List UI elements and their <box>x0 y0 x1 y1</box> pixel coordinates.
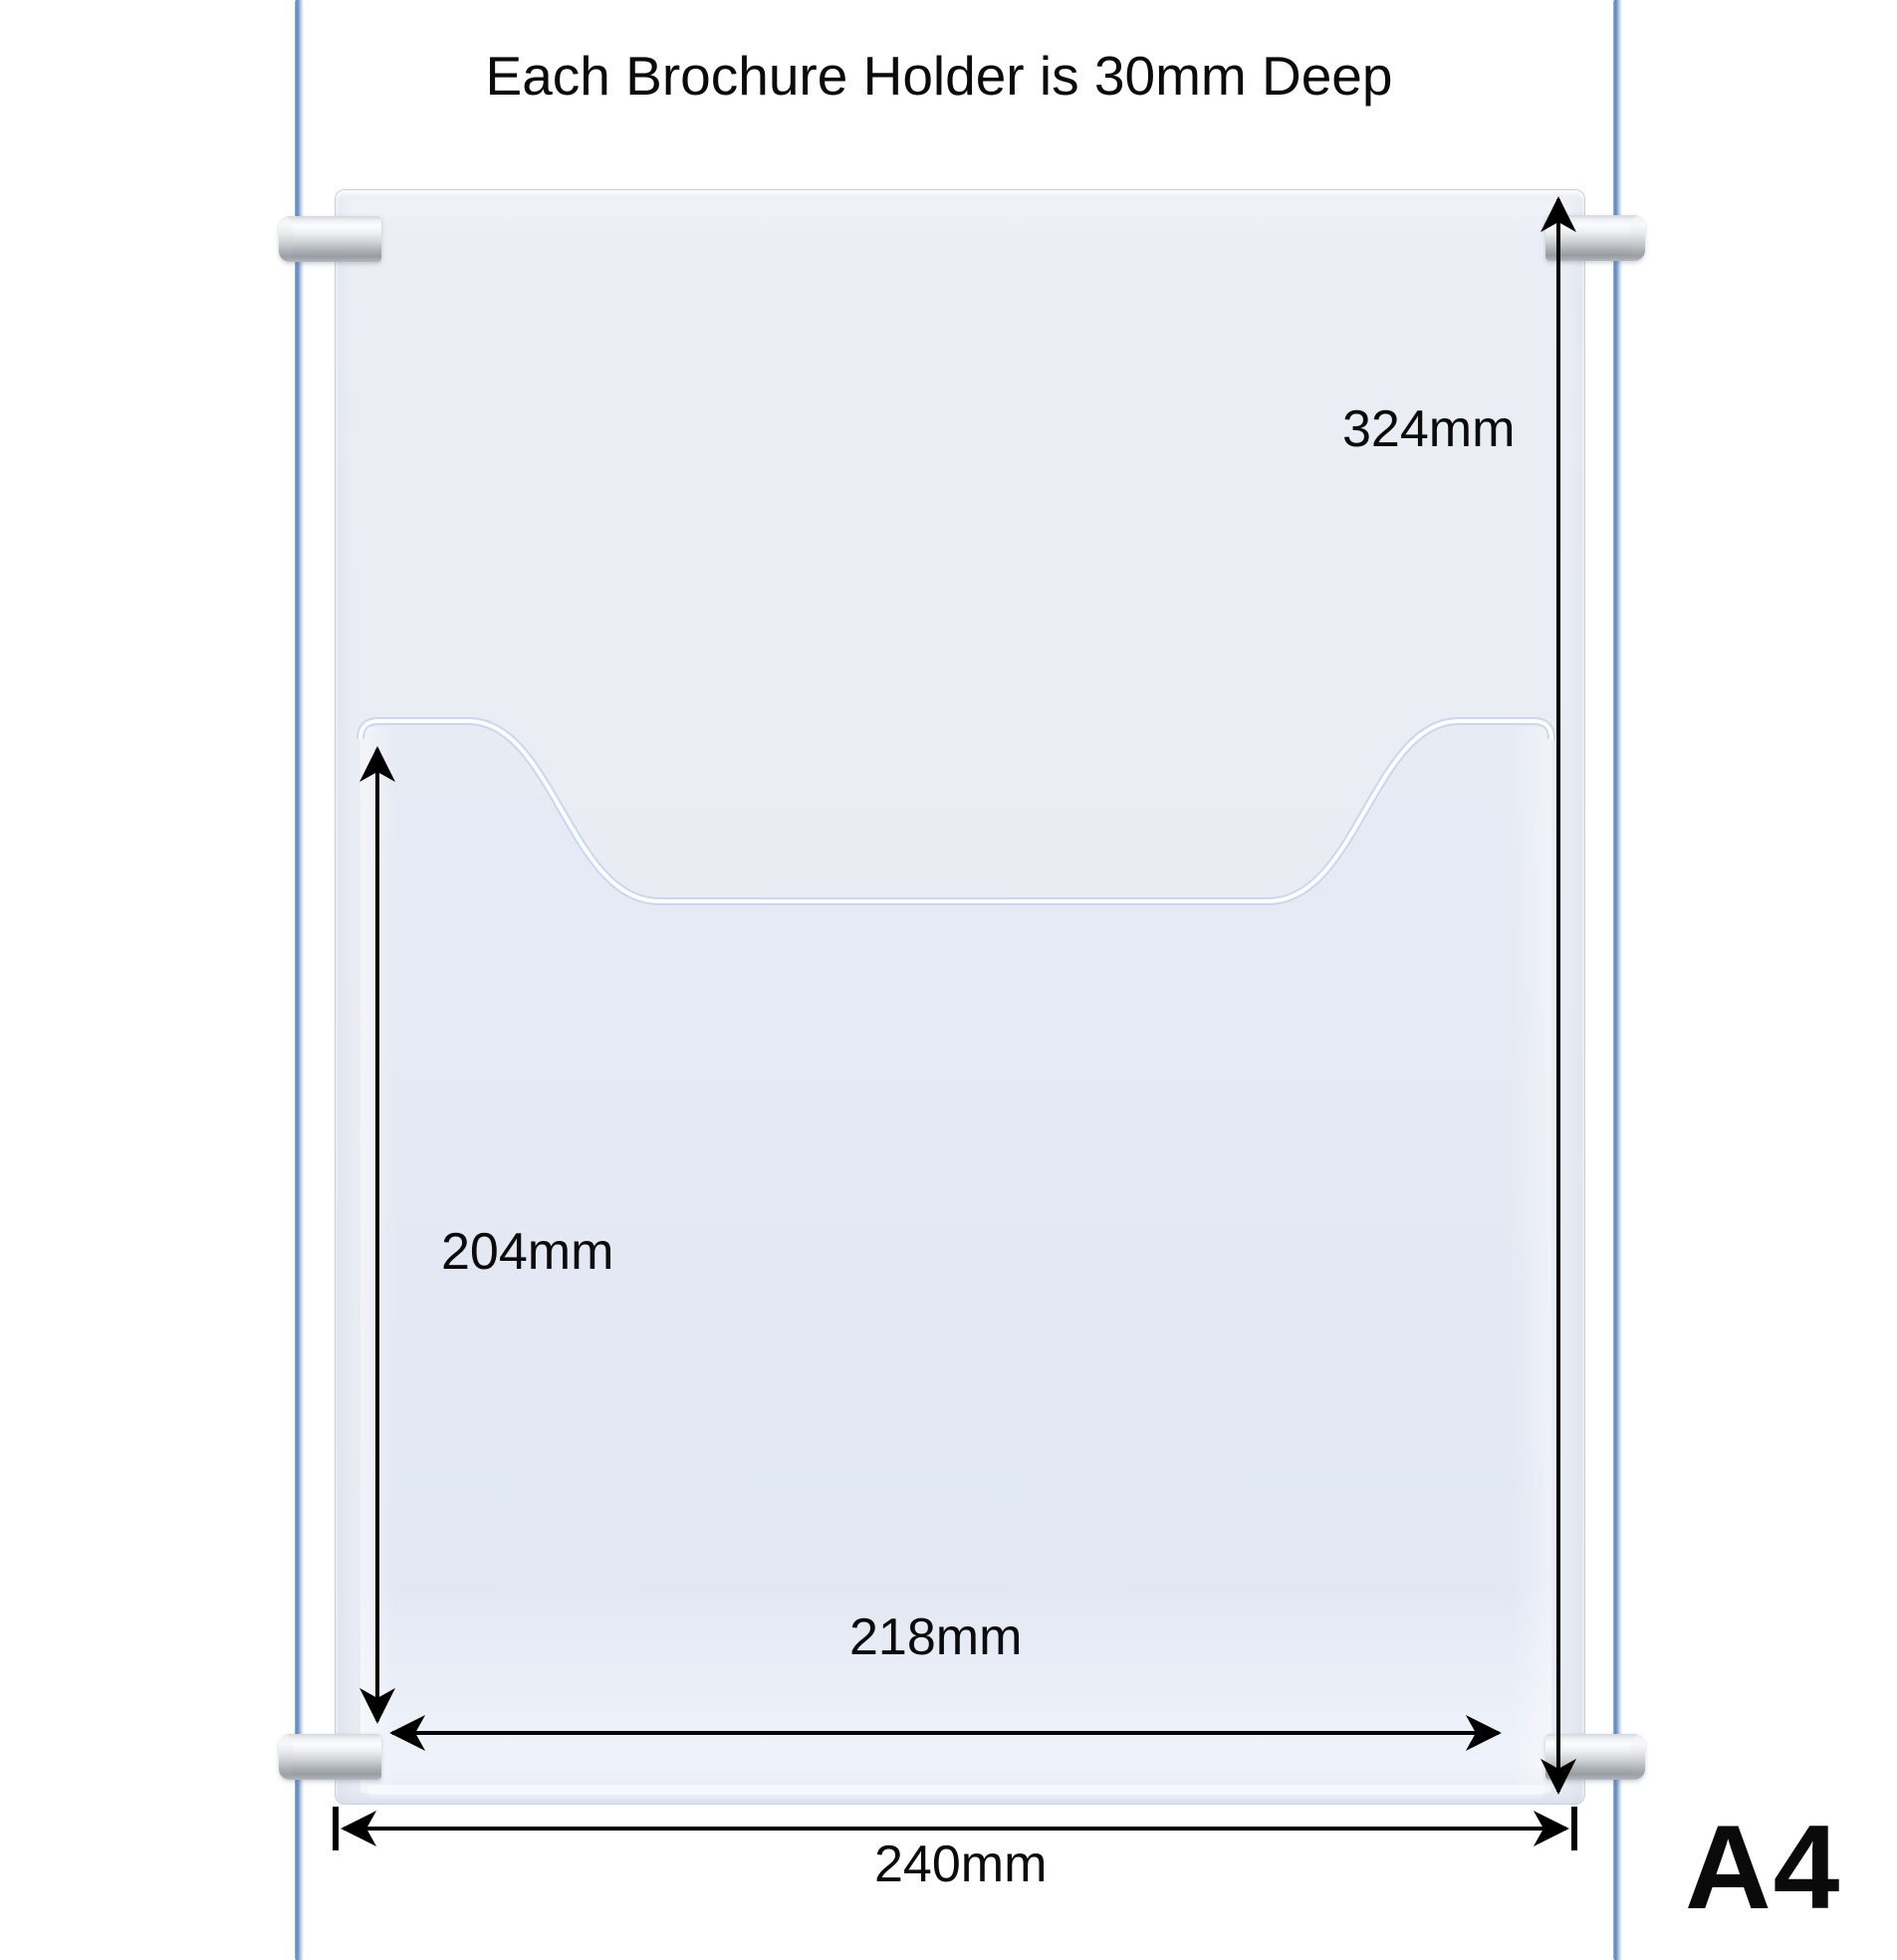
dim-label-panel-width: 240mm <box>874 1836 1047 1895</box>
dim-label-pocket-height: 204mm <box>441 1223 613 1283</box>
brochure-holder-diagram: Each Brochure Holder is 30mm Deep <box>0 0 1897 1960</box>
paper-size-label: A4 <box>1685 1799 1841 1936</box>
dim-label-panel-height: 324mm <box>1342 400 1515 460</box>
diagram-title: Each Brochure Holder is 30mm Deep <box>486 44 1393 108</box>
dim-label-pocket-width: 218mm <box>849 1608 1022 1668</box>
